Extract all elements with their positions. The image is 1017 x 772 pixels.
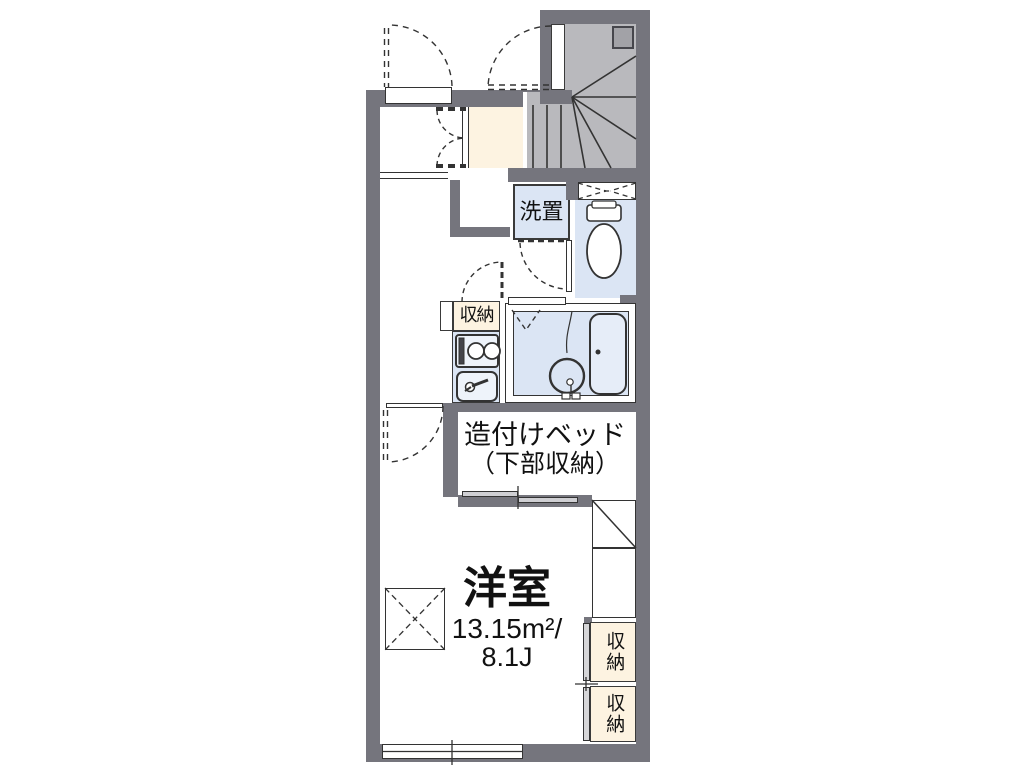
toilet-window-bowtie-icon <box>578 183 636 199</box>
toilet-door-swing-icon <box>518 241 566 289</box>
bathtub-handle-dot <box>596 350 601 355</box>
closet-lower-label: 収納 <box>593 690 633 738</box>
room-area-m2-label: 13.15m²/ <box>417 615 597 644</box>
toilet-icon <box>587 201 621 278</box>
stair-door-swing-icon <box>488 26 551 90</box>
bath-divider-line <box>567 311 572 353</box>
room-area-j-label: 8.1J <box>417 644 597 672</box>
fixture-box-diagonal-line <box>592 500 636 548</box>
genkan-double-door-icon <box>436 109 466 166</box>
stair-treads-icon <box>533 105 561 168</box>
room-door-swing-icon <box>384 406 444 463</box>
bed-label-line1: 造付けベッド <box>445 421 645 451</box>
room-name-label: 洋室 <box>417 565 597 613</box>
bath-washbasin-icon <box>550 359 584 399</box>
entrance-door-swing-icon <box>385 25 453 87</box>
stair-winder-fan-icon <box>572 56 636 168</box>
storage-door-swing-icon <box>462 262 502 302</box>
closet-upper-label: 収納 <box>593 628 633 676</box>
bed-label-line2: （下部収納） <box>445 450 645 478</box>
floorplan-canvas: 洗置 収納 造付けベッド （下部収納） 洋室 13.15m²/ 8.1J 収納 … <box>0 0 1017 772</box>
washer-label: 洗置 <box>513 184 570 240</box>
bathtub-icon <box>590 314 626 394</box>
sink-icon <box>457 372 497 401</box>
stove-icon <box>456 335 500 367</box>
window-bottom-lines <box>382 740 523 765</box>
closet-junction-cross <box>575 677 598 691</box>
hall-storage-label: 収納 <box>453 301 500 331</box>
bath-fold-door-icon <box>512 310 540 330</box>
